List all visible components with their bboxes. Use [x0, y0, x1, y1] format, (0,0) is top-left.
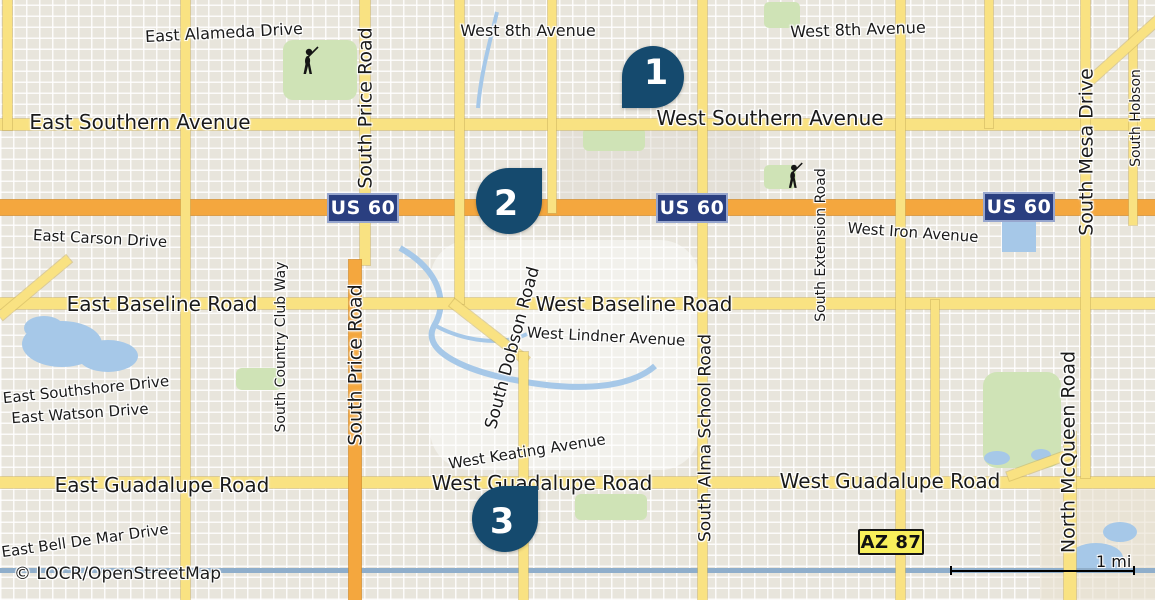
- road-segment: [3, 0, 12, 130]
- marker-number: 1: [644, 53, 668, 93]
- marker-number: 3: [490, 502, 514, 542]
- road-label: West Southern Avenue: [656, 108, 883, 128]
- road-label: North McQueen Road: [1060, 351, 1079, 553]
- road-segment: [896, 0, 905, 600]
- map-canvas[interactable]: US 60US 60US 60AZ 87East Alameda DriveWe…: [0, 0, 1155, 600]
- map-marker-3[interactable]: 3: [472, 486, 538, 552]
- route-shield-us60: US 60: [327, 193, 399, 223]
- road-label: South Hobson: [1129, 69, 1143, 167]
- road-label: South Price Road: [347, 284, 366, 445]
- scale-label: 1 mi: [1096, 552, 1131, 571]
- road-label: West 8th Avenue: [790, 20, 926, 41]
- road-label: West Guadalupe Road: [432, 473, 653, 493]
- road-label: East Southern Avenue: [29, 112, 250, 132]
- road-label: South Country Club Way: [274, 262, 288, 433]
- road-label: West 8th Avenue: [460, 23, 596, 39]
- route-shield-us60: US 60: [656, 193, 728, 223]
- road-label: South Mesa Drive: [1078, 68, 1097, 236]
- road-label: West Baseline Road: [536, 294, 733, 314]
- route-shield-az87: AZ 87: [858, 529, 924, 555]
- marker-number: 2: [494, 184, 518, 224]
- map-attribution: © LOCR/OpenStreetMap: [14, 564, 221, 584]
- road-label: South Price Road: [357, 27, 376, 188]
- road-segment: [455, 0, 464, 304]
- road-segment: [0, 200, 1155, 215]
- road-label: South Extension Road: [814, 168, 828, 321]
- road-segment: [985, 0, 993, 128]
- road-label: East Guadalupe Road: [55, 475, 270, 495]
- road-label: South Alma School Road: [698, 334, 715, 542]
- road-label: East Baseline Road: [67, 294, 258, 314]
- map-marker-1[interactable]: 1: [622, 46, 684, 108]
- route-shield-us60: US 60: [983, 192, 1055, 222]
- road-segment: [931, 300, 939, 482]
- road-label: West Guadalupe Road: [780, 471, 1001, 491]
- map-marker-2[interactable]: 2: [476, 168, 542, 234]
